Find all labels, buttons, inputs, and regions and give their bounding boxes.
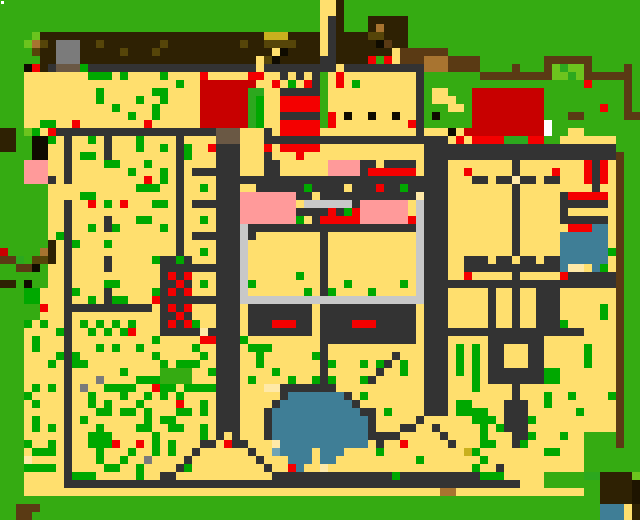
map-viewport (0, 0, 640, 520)
pixel-town-map-canvas[interactable] (0, 0, 640, 520)
